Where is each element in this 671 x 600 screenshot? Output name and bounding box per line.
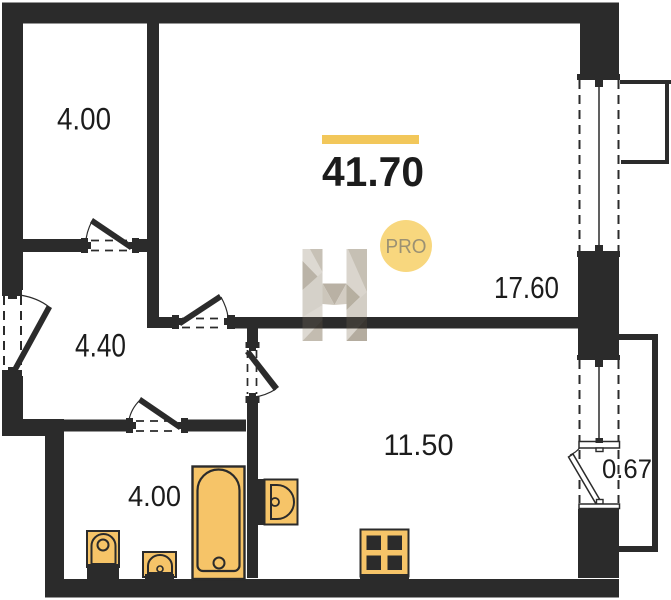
svg-text:11.50: 11.50 — [384, 429, 454, 462]
svg-text:PRO: PRO — [386, 236, 427, 258]
svg-text:17.60: 17.60 — [494, 270, 559, 305]
svg-text:0.67: 0.67 — [602, 454, 652, 484]
svg-text:4.00: 4.00 — [57, 101, 111, 137]
svg-text:4.00: 4.00 — [128, 481, 181, 513]
svg-text:4.40: 4.40 — [75, 328, 126, 364]
svg-text:41.70: 41.70 — [322, 148, 424, 195]
